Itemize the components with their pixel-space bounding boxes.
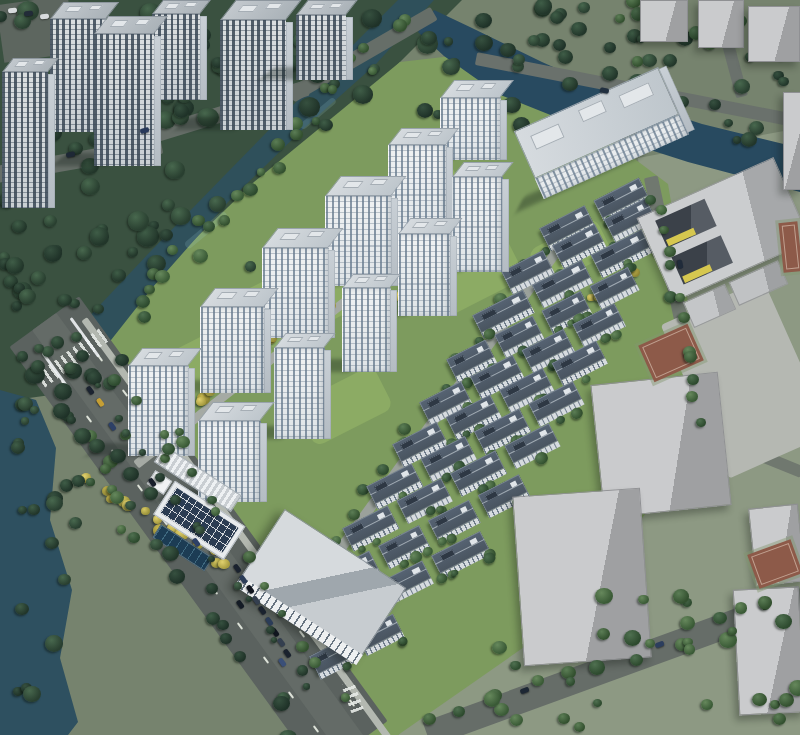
context-tower [296,0,346,80]
tree [299,97,320,116]
rooftop-unit [164,3,180,8]
rooftop-unit [87,5,103,11]
tree [72,475,84,486]
tree [510,661,521,671]
roof-skylight [477,346,485,353]
roof-skylight [586,347,595,355]
roof-skylight [412,567,421,575]
tree [176,436,189,448]
roof-skylight [524,321,532,328]
residential-tower [398,218,450,316]
tower-side [502,179,509,272]
tree [393,19,406,31]
roof-solar-panel [428,453,443,465]
residential-tower [452,162,502,272]
rooftop-unit [64,6,83,12]
tree [112,269,125,281]
roof-solar-panel [596,282,609,293]
tree [535,0,553,15]
massing-block [640,0,688,42]
rooftop-unit [403,132,422,138]
tree [624,630,641,646]
rooftop-unit [143,352,163,358]
tree [779,693,794,707]
tree [234,651,246,662]
roof-solar-panel [453,411,467,423]
roof-skylight [585,230,593,238]
roof-solar-panel [458,468,473,480]
tree [138,311,151,323]
tree [574,722,585,732]
tree [562,77,578,92]
tree [77,246,92,259]
roof-solar-panel [506,384,520,396]
tree [713,612,726,624]
tree [128,211,149,231]
roof-skylight [629,184,638,192]
tree [162,546,179,561]
tree [128,532,140,543]
roof-solar-panel [540,278,556,290]
rooftop-unit [264,3,282,9]
tree [602,66,618,81]
roof-solar-panel [350,522,365,534]
tree [12,301,22,311]
tree [578,2,589,12]
roof-solar-panel [512,440,527,452]
tree [175,428,184,436]
tree [110,491,124,504]
tree [144,285,155,295]
rooftop-unit [184,2,198,7]
tree [243,551,256,563]
massing-block [748,6,800,62]
tree [169,569,185,584]
tree [167,245,177,255]
tree [571,22,587,36]
rooftop-unit [240,405,258,411]
tree [160,430,169,438]
tree [752,693,766,706]
tree [789,680,800,696]
roof-solar-panel [600,248,616,260]
tree [642,54,656,67]
tree [589,660,605,674]
rooftop-unit [369,179,387,185]
tree [319,119,333,131]
rooftop-unit [455,84,475,90]
roof-solar-panel [482,426,497,438]
tree [86,478,94,486]
rooftop-unit [374,276,388,281]
roof-skylight [534,256,542,264]
rooftop-unit [14,61,30,66]
context-tower [94,16,154,166]
tree [362,9,382,28]
roof-skylight [385,620,393,627]
tower-side [500,100,507,160]
tree [686,391,698,402]
tree [44,215,57,227]
tree [358,43,369,53]
rooftop-unit [411,222,429,228]
tree [14,14,31,30]
tree [312,117,320,125]
roof-solar-panel [485,490,499,501]
tree [60,479,74,492]
tree [74,428,91,444]
roof-solar-panel [385,541,399,552]
tree [758,596,771,608]
tree [12,220,27,233]
tree [638,595,649,605]
tree [678,312,690,323]
tower-side [260,423,267,502]
roof-skylight [480,401,489,409]
rooftop-unit [306,231,324,237]
roof-skylight [431,484,440,492]
residential-tower [342,274,390,372]
tree [528,35,540,46]
roof-skylight [401,470,410,478]
roof-skylight [571,266,580,274]
tree [245,261,256,271]
tree [234,582,243,590]
tree [728,627,736,635]
tree [165,161,184,179]
roof-solar-panel [427,397,441,408]
rooftop-unit [32,60,46,65]
tree [724,119,733,127]
tree [243,183,257,196]
roof-skylight [630,236,639,244]
roof-skylight [427,428,436,436]
tree [6,257,24,273]
roof-skylight [377,512,386,520]
tree [17,351,29,362]
tower-facade [342,288,391,372]
tree [100,464,111,474]
roof-solar-panel [529,345,543,356]
roof-skylight [554,335,562,343]
rooftop-unit [168,351,185,357]
tree [735,602,748,614]
roof-solar-panel [478,371,492,382]
roof-solar-panel [404,495,419,507]
tree [155,270,170,284]
rooftop-unit [619,82,655,108]
tree [28,504,40,515]
tree [45,635,63,651]
tower-side [390,290,397,372]
tree [444,37,453,45]
context-tower [220,0,286,130]
roof-skylight [620,273,628,280]
tree [475,13,492,29]
tower-side [200,16,207,100]
tower-side [328,250,335,338]
tree [558,713,570,724]
roof-skylight [510,480,518,488]
tree [532,675,544,686]
rooftop-unit [480,83,497,89]
rooftop-unit [329,3,344,8]
tree [673,589,689,604]
rooftop-unit [287,337,304,343]
rooftop-unit [309,4,326,10]
tree [353,85,373,103]
roof-skylight [503,361,511,369]
rooftop-unit [307,336,322,341]
rooftop-unit [531,124,565,150]
tree [273,162,286,174]
tree [593,699,602,707]
tree [207,496,216,505]
tree [684,644,695,654]
residential-tower [274,333,324,439]
roof-skylight [539,429,548,437]
tree [558,50,574,64]
roof-skylight [511,296,520,304]
rooftop-unit [433,221,448,226]
tree [341,693,351,702]
residential-tower [262,228,328,338]
tree [219,215,230,225]
roof-skylight [469,537,478,545]
roof-skylight [572,297,580,304]
tree [64,362,77,374]
tree [136,295,150,308]
tree [271,637,278,643]
tree [69,517,82,529]
roof-skylight [485,457,494,465]
tower-side [391,198,398,286]
massing-block [783,92,800,190]
roof-solar-panel [374,480,389,492]
tower-side [154,36,161,166]
roof-solar-panel [453,355,466,366]
roof-skylight [410,531,418,539]
tower-side [48,74,55,208]
tower-side [450,236,457,316]
rooftop-unit [342,181,364,188]
roof-solar-panel [501,330,514,341]
roof-skylight [605,309,613,317]
tree [89,439,105,453]
tree [125,501,136,511]
tree [23,686,40,702]
roof-skylight [509,415,518,423]
rooftop-unit [279,233,301,240]
tower-facade [94,34,154,166]
tree [54,383,72,399]
tower-side [346,17,353,80]
tree [656,205,667,215]
tree [46,496,62,511]
tree [160,454,170,463]
tower-facade [325,196,392,286]
roof-solar-panel [560,357,574,369]
tower-facade [200,307,265,393]
rooftop-unit [109,20,129,26]
roof-solar-panel [481,308,497,320]
tree [19,289,35,304]
tree [595,588,612,604]
roof-solar-panel [560,240,574,251]
tower-facade [452,177,503,272]
roof-solar-panel [601,195,616,207]
tree [95,383,101,389]
rooftop-unit [577,100,607,123]
tree [550,11,565,24]
tree [90,227,110,245]
tree [220,633,232,644]
tree [110,449,125,463]
tree [51,336,64,348]
tree [139,449,146,456]
tower-facade [2,72,48,208]
context-tower [2,58,48,208]
tree [108,374,120,385]
tree [123,467,139,481]
rooftop-unit [427,131,443,137]
tree [597,628,610,640]
rooftop-unit [485,165,500,170]
tree [484,691,500,706]
tree [170,495,181,505]
roof-skylight [460,506,468,514]
tree [209,196,226,212]
tree [733,136,742,144]
tree [296,641,308,652]
roof-skylight [563,387,572,395]
rooftop-unit [237,5,259,12]
tree [171,207,190,225]
rooftop-unit [216,292,237,299]
roof-solar-panel [435,515,449,526]
tree [377,464,389,475]
tree [30,406,39,414]
residential-tower [200,288,264,393]
rooftop-unit [214,406,234,413]
roof-skylight [636,204,644,212]
roof-skylight [455,442,464,450]
tower-facade [274,348,325,439]
tree [500,43,515,57]
roof-solar-panel [580,319,594,330]
tree [122,429,130,437]
roof-skylight [575,212,584,220]
tree [741,132,757,147]
tree [778,77,788,86]
roof-solar-panel [611,214,625,225]
court-markings [782,224,800,269]
tree [297,665,308,675]
aerial-render [0,0,800,735]
tower-facade [296,15,346,80]
roof-solar-panel [536,398,551,410]
tree [150,539,162,550]
roof-solar-panel [509,266,523,277]
tower-side [264,309,271,393]
roof-solar-panel [547,222,562,234]
roof-skylight [452,387,460,395]
massing-block [698,0,744,48]
rooftop-unit [134,19,151,25]
tree [273,696,289,711]
rooftop-unit [354,277,370,282]
rooftop-unit [465,166,482,172]
tree [187,468,197,477]
roof-skylight [533,374,542,382]
roof-solar-panel [440,549,456,561]
tower-facade [398,234,451,316]
rooftop-unit [243,291,261,297]
roof-solar-panel [548,306,561,317]
tree [701,699,713,710]
tower-side [324,350,331,439]
tree [144,487,158,500]
roof-solar-panel [400,439,414,451]
tree [117,525,127,534]
tree [421,31,436,45]
